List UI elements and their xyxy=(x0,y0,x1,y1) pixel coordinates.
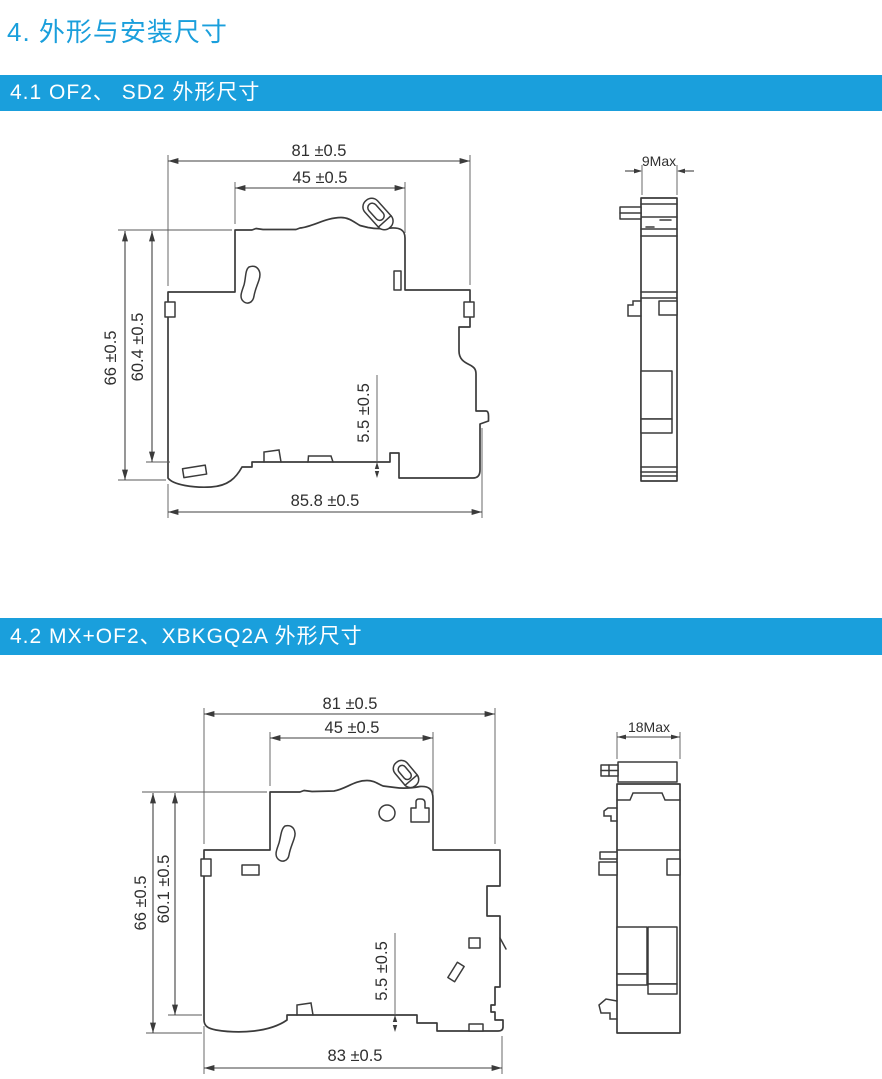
dim-width-top: 81 ±0.5 xyxy=(323,695,378,713)
side-left-clip xyxy=(599,862,617,875)
toggle-lever-icon xyxy=(390,757,422,790)
bottom-tab xyxy=(297,1003,313,1015)
dimension-side-of2: 9Max xyxy=(625,153,694,195)
side-right-notch xyxy=(659,301,677,315)
vent-slot xyxy=(242,865,259,875)
device-outline xyxy=(204,781,503,1032)
left-clip-notch xyxy=(165,302,175,317)
side-left-strip xyxy=(600,852,617,859)
drawing-mxof2-xbkgq2a: 81 ±0.5 45 ±0.5 66 ±0.5 60.1 ±0.5 5.5 ±0… xyxy=(0,680,882,1079)
kidney-slot xyxy=(241,266,260,303)
dimension-side-mxof2: 18Max xyxy=(617,719,680,759)
dim-height-body: 60.4 ±0.5 xyxy=(129,313,147,382)
side-outline xyxy=(617,784,680,1033)
dim-width-inner: 45 ±0.5 xyxy=(325,719,380,737)
side-right-notch xyxy=(667,859,680,875)
slanted-slot xyxy=(448,962,464,982)
side-view-mxof2 xyxy=(599,762,680,1033)
dim-height-overall: 66 ±0.5 xyxy=(132,876,150,931)
side-lower-panel-left xyxy=(617,927,647,974)
right-clip-notch xyxy=(464,302,474,317)
front-view-of2 xyxy=(165,195,489,487)
dim-foot-height: 5.5 ±0.5 xyxy=(355,383,373,443)
page-title: 4. 外形与安装尺寸 xyxy=(7,12,228,49)
side-outline xyxy=(641,198,677,481)
side-bottom-hook xyxy=(599,999,617,1019)
kidney-slot xyxy=(276,826,295,861)
dim-width-bottom: 83 ±0.5 xyxy=(328,1047,383,1065)
side-top-notch xyxy=(617,793,680,800)
bottom-tab-1 xyxy=(264,450,281,462)
side-left-hook xyxy=(604,808,617,821)
dim-depth: 18Max xyxy=(628,719,670,735)
page: { "page": { "title": "4. 外形与安装尺寸" }, "co… xyxy=(0,0,882,1079)
round-hole xyxy=(379,805,395,821)
left-clip-notch xyxy=(201,859,211,876)
dim-height-overall: 66 ±0.5 xyxy=(102,331,120,386)
side-left-hook xyxy=(628,301,641,316)
dimensions-front-mxof2: 81 ±0.5 45 ±0.5 66 ±0.5 60.1 ±0.5 5.5 ±0… xyxy=(132,695,502,1074)
section-banner-4-1: 4.1 OF2、 SD2 外形尺寸 xyxy=(0,75,882,111)
small-square-slot xyxy=(469,938,480,948)
dim-depth: 9Max xyxy=(642,153,676,169)
device-outline xyxy=(168,218,489,488)
side-lower-panel xyxy=(641,371,672,419)
dim-foot-height: 5.5 ±0.5 xyxy=(373,941,391,1001)
bottom-edge-tab xyxy=(469,1024,483,1031)
foot-slot xyxy=(183,465,207,477)
side-top-block xyxy=(618,762,677,782)
side-lower-strip xyxy=(641,419,672,433)
side-view-of2 xyxy=(620,198,677,481)
edge-chamfer-tick xyxy=(500,938,506,949)
bottom-tab-2 xyxy=(308,456,333,462)
drawing-of2-sd2: 81 ±0.5 45 ±0.5 66 ±0.5 60.4 ±0.5 5.5 ±0… xyxy=(0,120,882,560)
latch-shape xyxy=(411,799,429,822)
front-view-mxof2 xyxy=(201,757,506,1032)
vent-slot xyxy=(394,271,401,290)
side-lower-strip-left xyxy=(617,974,647,985)
dim-width-inner: 45 ±0.5 xyxy=(293,169,348,187)
dim-width-bottom: 85.8 ±0.5 xyxy=(291,492,360,510)
dim-height-body: 60.1 ±0.5 xyxy=(155,855,173,924)
side-lower-panel-right xyxy=(648,927,677,984)
section-banner-4-2: 4.2 MX+OF2、XBKGQ2A 外形尺寸 xyxy=(0,618,882,655)
side-lower-strip-right xyxy=(648,984,677,994)
dim-width-top: 81 ±0.5 xyxy=(292,142,347,160)
